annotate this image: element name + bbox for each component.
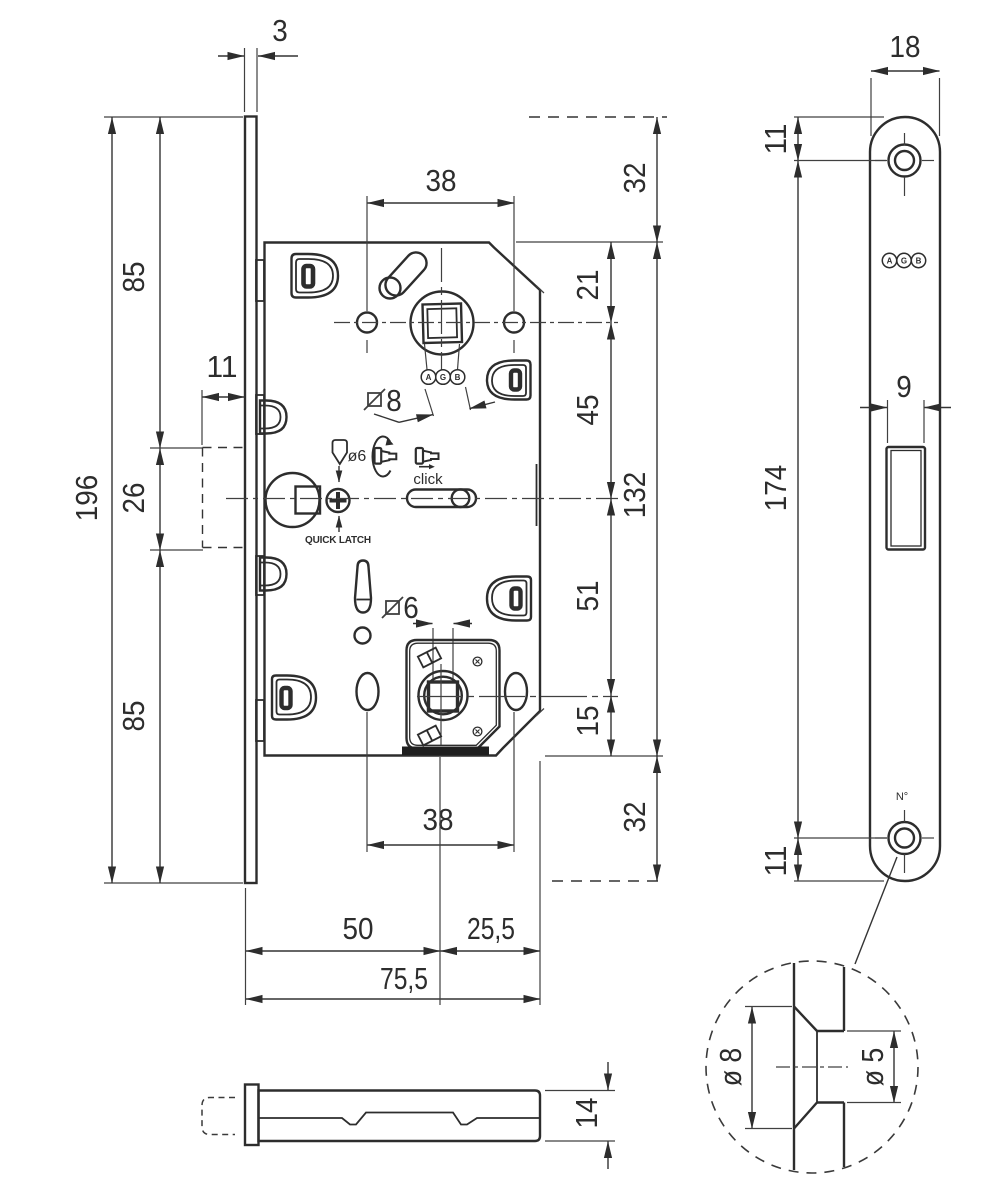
svg-text:196: 196 — [69, 475, 104, 522]
svg-text:38: 38 — [423, 802, 454, 837]
svg-text:A: A — [887, 257, 893, 266]
svg-text:G: G — [901, 257, 907, 266]
svg-text:32: 32 — [617, 802, 652, 833]
svg-text:click: click — [413, 471, 443, 488]
svg-text:B: B — [916, 257, 922, 266]
svg-text:B: B — [455, 373, 461, 382]
svg-text:75,5: 75,5 — [380, 961, 428, 996]
svg-text:11: 11 — [758, 124, 793, 155]
svg-text:51: 51 — [570, 581, 605, 612]
svg-text:QUICK LATCH: QUICK LATCH — [305, 535, 371, 546]
svg-text:8: 8 — [386, 383, 402, 418]
svg-text:15: 15 — [570, 706, 605, 737]
svg-text:11: 11 — [207, 349, 238, 384]
svg-text:174: 174 — [758, 465, 793, 512]
svg-text:18: 18 — [890, 29, 921, 64]
svg-text:21: 21 — [570, 270, 605, 301]
svg-text:26: 26 — [116, 483, 151, 514]
svg-text:ø 5: ø 5 — [855, 1048, 890, 1087]
svg-text:ø 8: ø 8 — [713, 1048, 748, 1087]
svg-text:G: G — [440, 373, 446, 382]
svg-text:3: 3 — [272, 13, 288, 48]
svg-text:85: 85 — [116, 262, 151, 293]
svg-text:38: 38 — [426, 163, 457, 198]
svg-text:A: A — [426, 373, 432, 382]
svg-text:6: 6 — [403, 590, 419, 625]
svg-text:14: 14 — [569, 1098, 604, 1129]
svg-text:85: 85 — [116, 701, 151, 732]
svg-text:32: 32 — [617, 163, 652, 194]
svg-text:25,5: 25,5 — [467, 911, 515, 946]
svg-text:ø6: ø6 — [348, 448, 367, 465]
svg-text:9: 9 — [896, 369, 912, 404]
svg-text:45: 45 — [570, 395, 605, 426]
svg-text:132: 132 — [617, 472, 652, 519]
svg-text:11: 11 — [758, 846, 793, 877]
svg-text:50: 50 — [343, 911, 374, 946]
svg-text:N°: N° — [896, 791, 908, 803]
